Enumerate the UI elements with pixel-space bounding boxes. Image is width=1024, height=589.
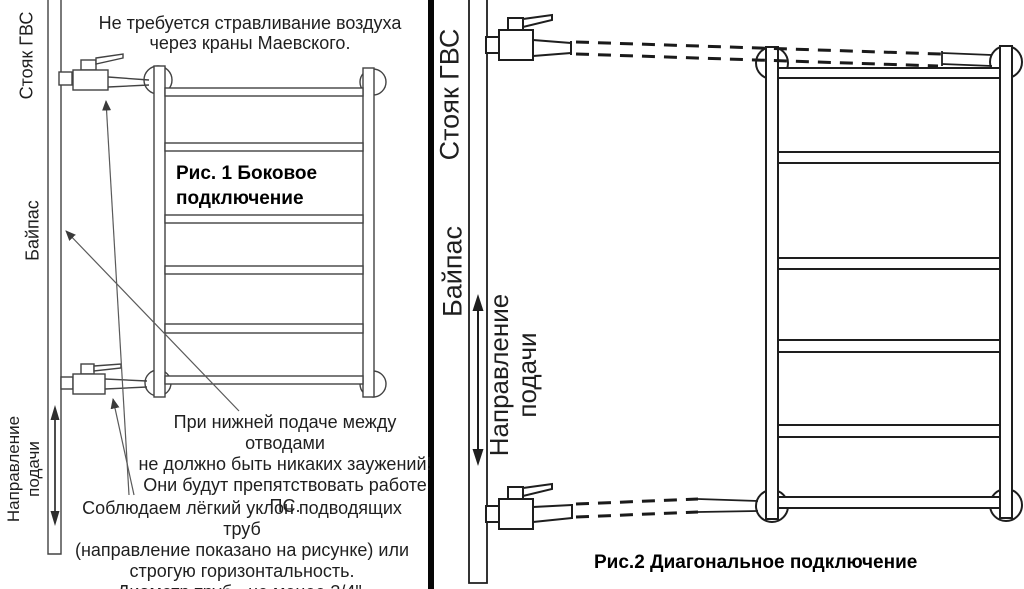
valve-lever xyxy=(523,15,552,27)
rail-bar xyxy=(778,152,1000,163)
rail-bar xyxy=(165,376,363,384)
diagram-canvas: Стояк ГВС Байпас Направление подачи Не т… xyxy=(0,0,1024,589)
right-diagram xyxy=(469,0,1022,583)
rail-bar xyxy=(165,143,363,151)
right-towel-rail xyxy=(756,46,1022,522)
figure1-caption: Рис. 1 Боковое подключение xyxy=(176,161,317,211)
supply-pipe xyxy=(533,505,572,507)
valve-stem xyxy=(81,364,94,374)
supply-pipe xyxy=(533,53,571,56)
bottom-corner-pipe xyxy=(698,499,758,512)
left-flow-direction-arrow xyxy=(51,405,60,526)
valve-fitting xyxy=(486,506,499,522)
rail-bar xyxy=(778,340,1000,352)
rail-post-right xyxy=(363,68,374,397)
rail-bar xyxy=(778,497,1000,508)
rail-bar xyxy=(778,68,1000,78)
valve-lever xyxy=(523,484,552,496)
left-bottom-valve xyxy=(61,364,147,394)
left-top-valve xyxy=(59,54,149,90)
bottom-diagonal-pipe-dashed xyxy=(576,499,698,517)
supply-pipe xyxy=(533,518,572,522)
right-top-valve xyxy=(486,15,571,60)
right-riser-label: Стояк ГВС xyxy=(435,10,466,180)
right-flow-direction-label: Направление подачи xyxy=(485,275,541,475)
valve-stem xyxy=(508,487,523,499)
valve-fitting xyxy=(61,377,73,389)
supply-pipe xyxy=(108,85,149,87)
rail-bar xyxy=(778,425,1000,437)
rail-post-left xyxy=(154,66,165,397)
valve-lever xyxy=(96,54,123,64)
valve-body xyxy=(73,374,105,394)
annotation-arrow-bottom-valve xyxy=(113,399,134,495)
left-bottom-note: Соблюдаем лёгкий уклон подводящих труб (… xyxy=(62,498,422,589)
valve-stem xyxy=(508,18,523,30)
valve-stem xyxy=(81,60,96,70)
left-top-note: Не требуется стравливание воздуха через … xyxy=(85,13,415,53)
supply-pipe xyxy=(105,387,147,389)
supply-pipe xyxy=(108,77,149,80)
valve-lever xyxy=(94,364,121,371)
left-towel-rail xyxy=(144,66,386,397)
supply-pipe xyxy=(533,40,571,43)
valve-fitting xyxy=(486,37,499,53)
rail-bar xyxy=(165,324,363,333)
supply-pipe xyxy=(105,379,147,381)
left-flow-direction-label: Направление подачи xyxy=(4,394,44,544)
left-riser-label: Стояк ГВС xyxy=(17,1,38,111)
left-bypass-label: Байпас xyxy=(23,176,44,286)
valve-body xyxy=(499,499,533,529)
right-bottom-valve xyxy=(486,484,572,529)
right-flow-direction-arrow xyxy=(473,294,484,466)
valve-fitting xyxy=(59,72,72,85)
right-bypass-label: Байпас xyxy=(438,187,469,357)
rail-post-right xyxy=(1000,46,1012,518)
rail-post-left xyxy=(766,47,778,519)
figure2-caption: Рис.2 Диагональное подключение xyxy=(594,552,917,574)
top-corner-pipe xyxy=(942,51,992,66)
valve-body xyxy=(73,70,108,90)
rail-bar xyxy=(165,266,363,274)
valve-body xyxy=(499,30,533,60)
annotation-arrow-top-valve xyxy=(106,101,129,495)
rail-bar xyxy=(165,88,363,96)
rail-bar xyxy=(778,258,1000,269)
rail-bar xyxy=(165,215,363,223)
